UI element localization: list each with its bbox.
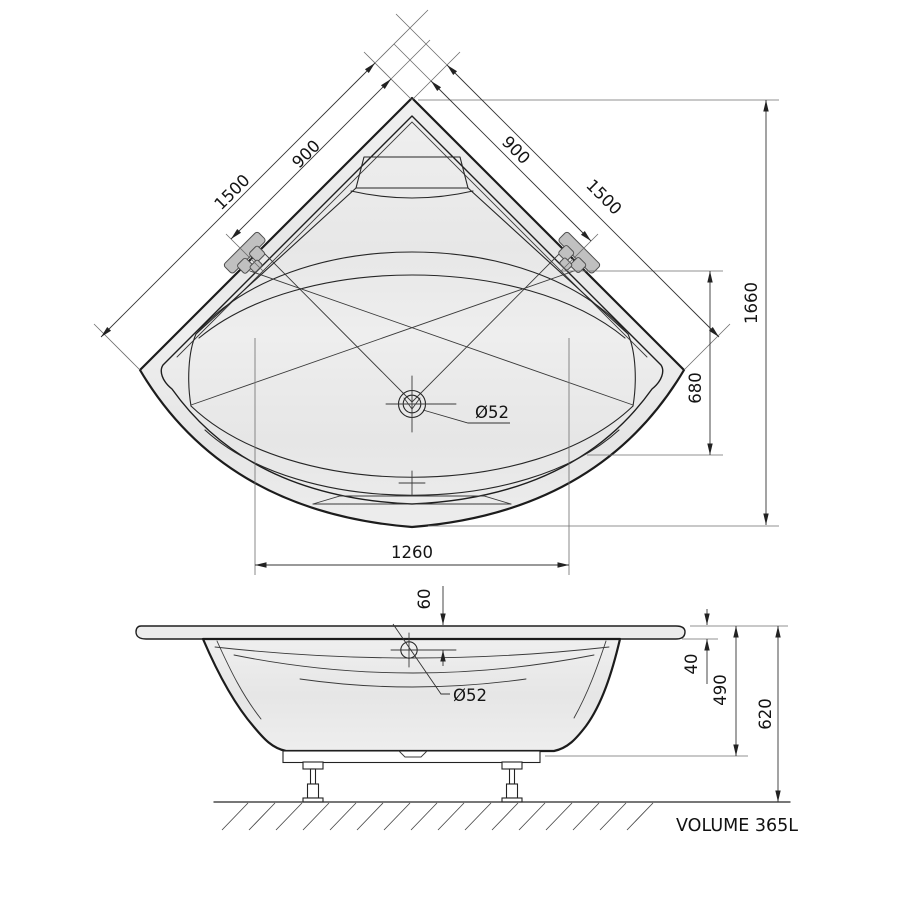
top-view: 1500 900 900 1500 1660 680 1260 Ø52: [94, 10, 779, 575]
label-680: 680: [686, 372, 705, 404]
label-drain-front: Ø52: [453, 686, 487, 705]
label-1660: 1660: [742, 282, 761, 324]
floor-hatching: [222, 803, 653, 830]
volume-label: VOLUME 365L: [676, 816, 798, 836]
label-40: 40: [682, 654, 701, 675]
label-1500-right: 1500: [582, 176, 625, 219]
leg-left: [303, 762, 323, 802]
label-1500-left: 1500: [211, 171, 254, 214]
bathtub-drawing-svg: 1500 900 900 1500 1660 680 1260 Ø52: [0, 0, 900, 899]
label-900-left: 900: [288, 136, 324, 172]
label-60: 60: [415, 589, 434, 610]
leg-right: [502, 762, 522, 802]
shell-body: [203, 639, 620, 751]
technical-drawing-canvas: 1500 900 900 1500 1660 680 1260 Ø52: [0, 0, 900, 899]
label-drain-top: Ø52: [475, 403, 509, 422]
label-900-right: 900: [498, 132, 534, 168]
rim-slab: [136, 626, 685, 639]
front-view: 60 Ø52 40 490 620 VOLUME 365L: [136, 586, 798, 836]
label-490: 490: [711, 674, 730, 706]
label-1260: 1260: [391, 543, 433, 562]
label-620: 620: [756, 698, 775, 730]
